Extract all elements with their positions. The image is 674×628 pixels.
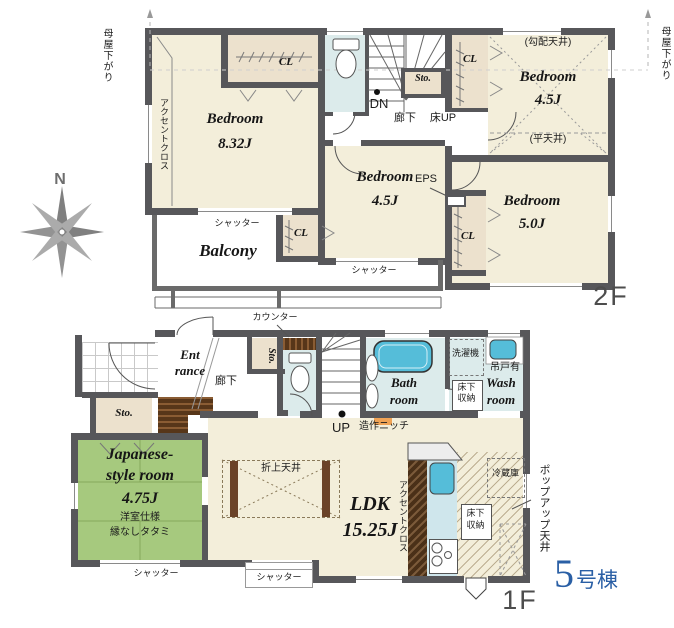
roof-note-right: 母屋下がり bbox=[653, 10, 669, 96]
wall bbox=[221, 28, 228, 88]
bedroom-main-name: Bedroom bbox=[165, 112, 305, 128]
unit-suffix: 号棟 bbox=[576, 567, 618, 594]
coffered-ceiling-label: 折上天井 bbox=[256, 464, 306, 475]
wall bbox=[353, 112, 369, 116]
balcony-wall bbox=[152, 215, 157, 288]
roof-note-left: 母屋下がり bbox=[95, 12, 111, 98]
window bbox=[490, 283, 582, 290]
shutter-label-jroom: シャッター bbox=[124, 569, 188, 578]
wall bbox=[318, 28, 325, 265]
toilet-2f-floor bbox=[325, 35, 365, 112]
counter-top-1f bbox=[283, 338, 316, 350]
wall bbox=[523, 508, 530, 583]
wall bbox=[445, 28, 452, 112]
wash-label-2: room bbox=[478, 393, 524, 407]
bedroom-se-name: Bedroom bbox=[472, 194, 592, 210]
bath-label-2: room bbox=[378, 393, 430, 407]
japanese-room-name-2: style room bbox=[80, 468, 200, 485]
underfloor-wash-label-1: 床下 bbox=[452, 383, 481, 392]
wall bbox=[202, 505, 208, 567]
wall bbox=[202, 433, 208, 477]
closet-cl2-label: CL bbox=[287, 228, 315, 240]
wall bbox=[452, 108, 488, 112]
storage-1f-top-label: Sto. bbox=[256, 340, 276, 372]
floor-label-2f: 2F bbox=[583, 282, 639, 310]
window bbox=[488, 330, 520, 337]
unit-badge: 5 号棟 bbox=[546, 548, 626, 594]
japanese-room-name-1: Japanese- bbox=[80, 447, 200, 464]
hallway-2f-label: 廊下 bbox=[390, 113, 420, 125]
underfloor-wash-label-2: 収納 bbox=[452, 394, 481, 403]
japanese-room-size: 4.75J bbox=[80, 491, 200, 508]
wall bbox=[312, 410, 322, 416]
bedroom-main-size: 8.32J bbox=[165, 137, 305, 153]
shutter-label-ldk: シャッター bbox=[247, 573, 311, 582]
wall bbox=[277, 410, 288, 416]
wall bbox=[316, 333, 322, 416]
window bbox=[608, 50, 615, 78]
window bbox=[356, 576, 402, 583]
stove bbox=[429, 539, 458, 574]
window bbox=[100, 560, 180, 567]
wall bbox=[247, 333, 252, 374]
wall bbox=[200, 411, 258, 418]
niche-label: 造作ニッチ bbox=[358, 422, 410, 433]
stairs-1f-floor bbox=[322, 338, 360, 416]
wall bbox=[361, 140, 445, 146]
bath-label-1: Bath bbox=[378, 376, 430, 390]
wall bbox=[71, 560, 100, 567]
wall bbox=[277, 333, 283, 416]
flat-ceiling-label: (平天井) bbox=[488, 135, 608, 146]
wall bbox=[445, 270, 486, 276]
wall bbox=[276, 256, 318, 262]
floor-plan: 母屋下がり 母屋下がり Bedroom 8.32J アクセントクロス CL DN… bbox=[0, 0, 674, 628]
stairs-down-label: DN bbox=[360, 97, 398, 111]
window bbox=[327, 28, 363, 35]
closet-cl3-label: CL bbox=[456, 54, 484, 66]
wall bbox=[325, 112, 333, 116]
wall bbox=[221, 82, 318, 88]
compass-north-label: N bbox=[48, 172, 72, 189]
wall bbox=[445, 155, 615, 162]
bedroom-mid-size: 4.5J bbox=[325, 194, 445, 210]
wall bbox=[312, 576, 356, 583]
eps-box bbox=[446, 195, 466, 207]
wash-label-1: Wash bbox=[478, 376, 524, 390]
wall bbox=[155, 330, 175, 337]
wall bbox=[360, 333, 366, 416]
entrance-label-1: Ent bbox=[158, 348, 222, 362]
japanese-room-note-1: 洋室仕様 bbox=[80, 513, 200, 524]
popup-ceiling-label: ポップアップ天井 bbox=[531, 454, 549, 562]
accent-cloth-2f: アクセントクロス bbox=[154, 82, 168, 186]
bedroom-mid-name: Bedroom bbox=[325, 170, 445, 186]
wall bbox=[429, 330, 488, 337]
washing-machine-label: 洗濯機 bbox=[450, 349, 481, 358]
entrance-porch bbox=[82, 342, 158, 394]
wall bbox=[445, 146, 452, 290]
wall bbox=[75, 335, 82, 397]
bedroom-se-size: 5.0J bbox=[472, 217, 592, 233]
compass-rose-icon bbox=[20, 186, 104, 278]
sloped-ceiling-label: (勾配天井) bbox=[488, 38, 608, 49]
balcony-wall bbox=[438, 260, 443, 291]
toilet-1f-floor bbox=[283, 350, 316, 416]
wall bbox=[402, 576, 464, 583]
japanese-room-note-2: 縁なしタタミ bbox=[80, 528, 200, 539]
window bbox=[336, 258, 418, 265]
balcony-floor-2 bbox=[283, 258, 318, 288]
shutter-label-bed1: シャッター bbox=[205, 219, 269, 228]
kitchen-counter bbox=[408, 460, 427, 578]
stairs-up-label: UP bbox=[326, 421, 356, 435]
bedroom-ne-name: Bedroom bbox=[488, 70, 608, 86]
balcony-wall bbox=[152, 286, 443, 291]
accent-cloth-1f: アクセントクロス bbox=[393, 468, 407, 564]
window bbox=[503, 28, 561, 35]
window bbox=[145, 105, 152, 163]
wall bbox=[360, 411, 478, 418]
closet-cl3-floor bbox=[452, 35, 488, 112]
counter-label: カウンター bbox=[246, 313, 304, 322]
window bbox=[608, 196, 615, 232]
closet-cl4-label: CL bbox=[452, 231, 484, 243]
hallway-1f-label: 廊下 bbox=[210, 376, 242, 388]
wall bbox=[523, 330, 530, 474]
closet-cl1-label: CL bbox=[269, 57, 303, 69]
storage-2f-label: Sto. bbox=[401, 74, 445, 85]
balcony-label: Balcony bbox=[178, 242, 278, 260]
refrigerator-label: 冷蔵庫 bbox=[489, 469, 522, 478]
floor-label-1f: 1F bbox=[492, 586, 548, 614]
ceiling-beam bbox=[230, 461, 238, 517]
unit-number: 5 bbox=[554, 554, 574, 594]
window bbox=[198, 208, 292, 215]
shutter-label-bed3: シャッター bbox=[342, 266, 406, 275]
entrance-door-gap bbox=[175, 330, 213, 337]
wall bbox=[488, 576, 530, 583]
window bbox=[71, 483, 78, 509]
wall bbox=[325, 140, 333, 146]
underfloor-kitchen-label-1: 床下 bbox=[461, 509, 490, 518]
wall bbox=[71, 433, 208, 440]
storage-1f-left-label: Sto. bbox=[98, 408, 150, 420]
window bbox=[385, 330, 429, 337]
hanging-cupboard-label: 吊戸有 bbox=[484, 363, 526, 374]
underfloor-kitchen-label-2: 収納 bbox=[461, 521, 490, 530]
bedroom-ne-size: 4.5J bbox=[488, 93, 608, 109]
floor-hatch-up-label: 床UP bbox=[424, 113, 462, 125]
